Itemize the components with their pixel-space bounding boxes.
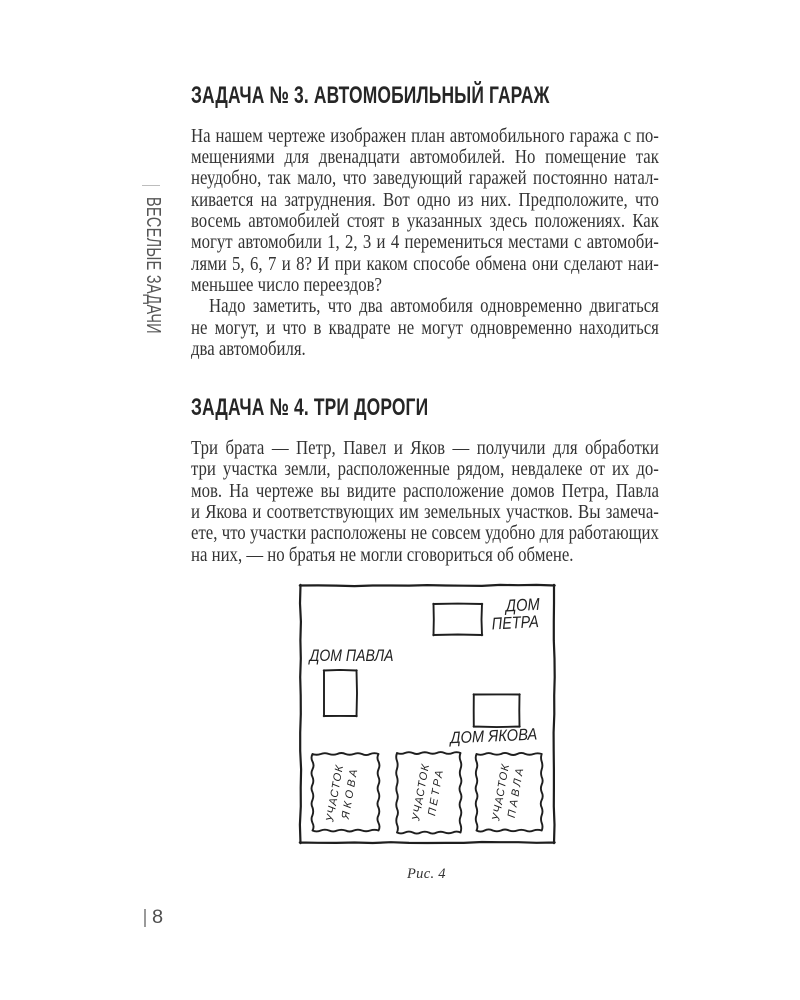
svg-text:ПЕТРА: ПЕТРА [491, 612, 539, 633]
svg-text:ДОМ ЯКОВА: ДОМ ЯКОВА [448, 726, 537, 748]
svg-text:ДОМ ПАВЛА: ДОМ ПАВЛА [308, 647, 394, 665]
